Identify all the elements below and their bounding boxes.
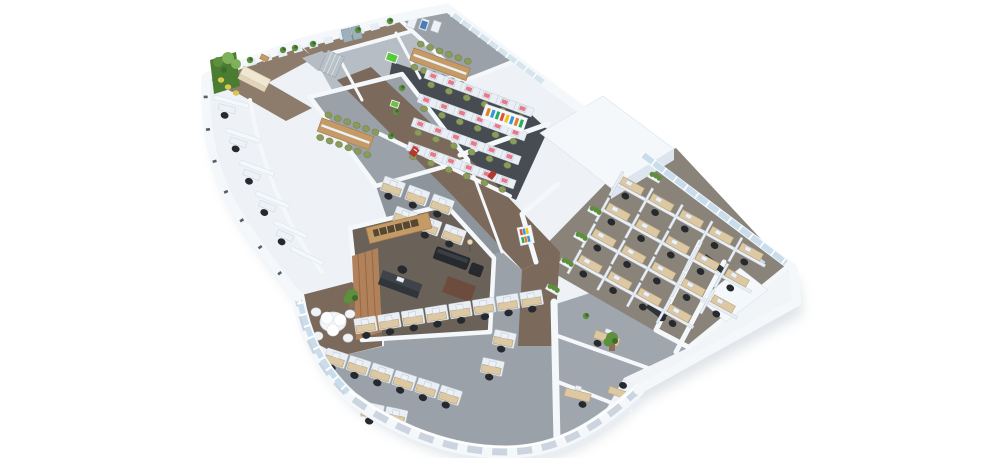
floorplan-svg: 3D isometric rendering of an office floo… xyxy=(0,0,1000,458)
floorplan-rendering: 3D isometric rendering of an office floo… xyxy=(0,0,1000,458)
floor-lamp xyxy=(468,240,473,245)
